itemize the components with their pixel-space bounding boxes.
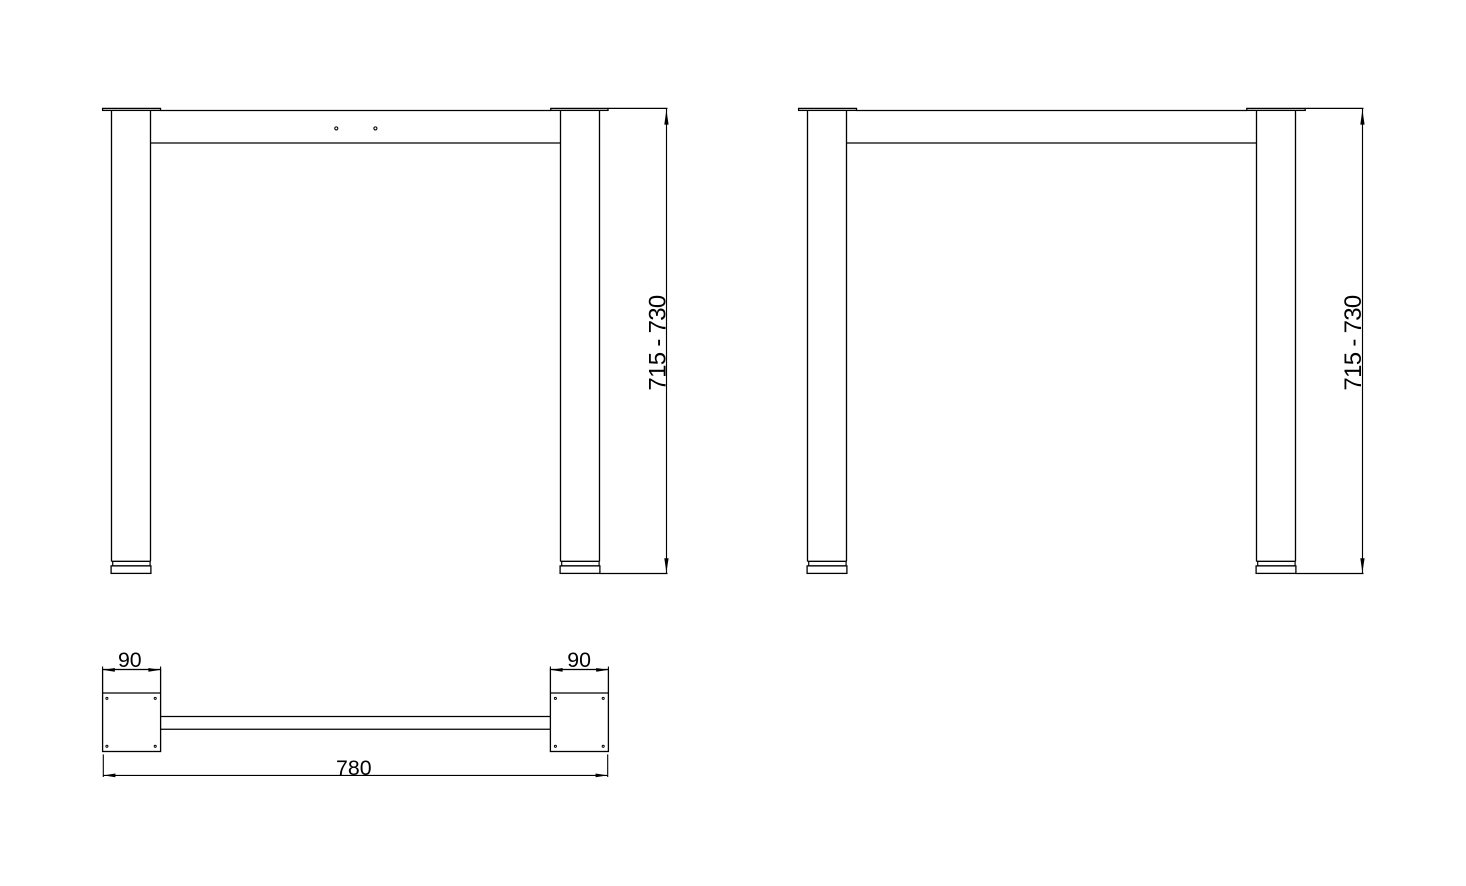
- svg-text:90: 90: [567, 648, 591, 672]
- svg-text:715 - 730: 715 - 730: [1340, 295, 1367, 390]
- svg-text:780: 780: [336, 756, 372, 780]
- svg-text:90: 90: [118, 648, 142, 672]
- svg-text:715 - 730: 715 - 730: [645, 295, 672, 390]
